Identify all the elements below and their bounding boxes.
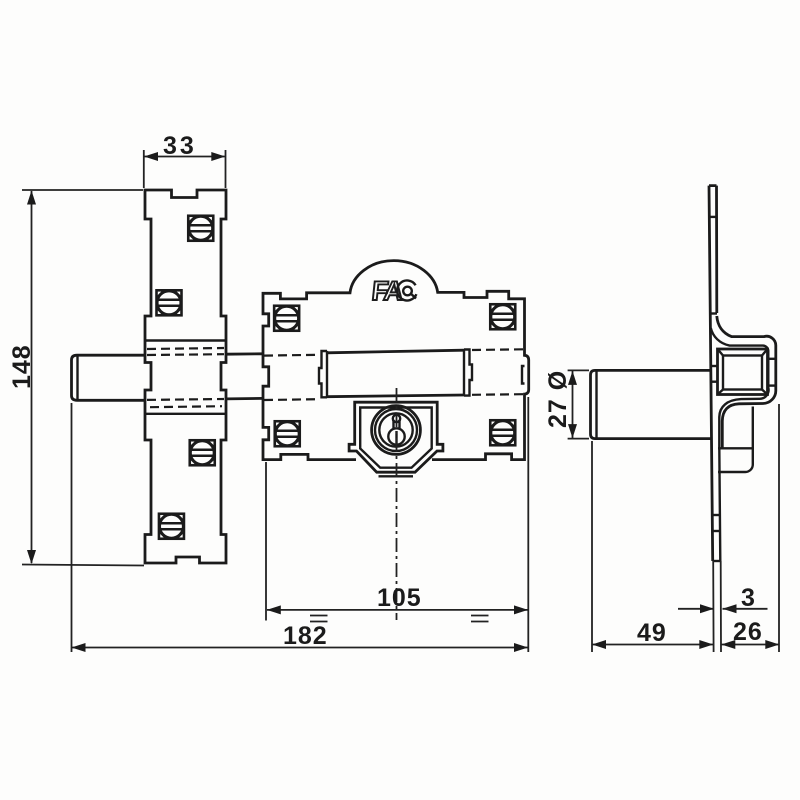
svg-text:27 Ø: 27 Ø <box>544 370 572 428</box>
svg-text:26: 26 <box>733 618 763 646</box>
svg-text:49: 49 <box>637 619 667 647</box>
svg-text:33: 33 <box>163 132 197 160</box>
svg-text:105: 105 <box>377 584 422 612</box>
svg-text:FA: FA <box>370 275 404 306</box>
svg-text:3: 3 <box>741 584 755 612</box>
svg-text:182: 182 <box>283 622 328 650</box>
svg-text:148: 148 <box>8 344 36 389</box>
